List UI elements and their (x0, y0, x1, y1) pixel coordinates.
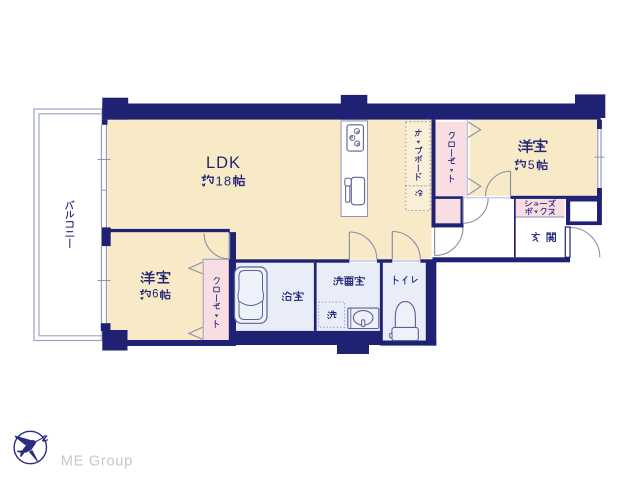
svg-text:ME Group: ME Group (61, 453, 133, 469)
svg-text:8: 8 (224, 173, 231, 188)
svg-text:1: 1 (215, 173, 222, 188)
svg-text:LDK: LDK (206, 154, 241, 172)
svg-text:6: 6 (152, 289, 158, 301)
svg-text:5: 5 (528, 158, 535, 172)
